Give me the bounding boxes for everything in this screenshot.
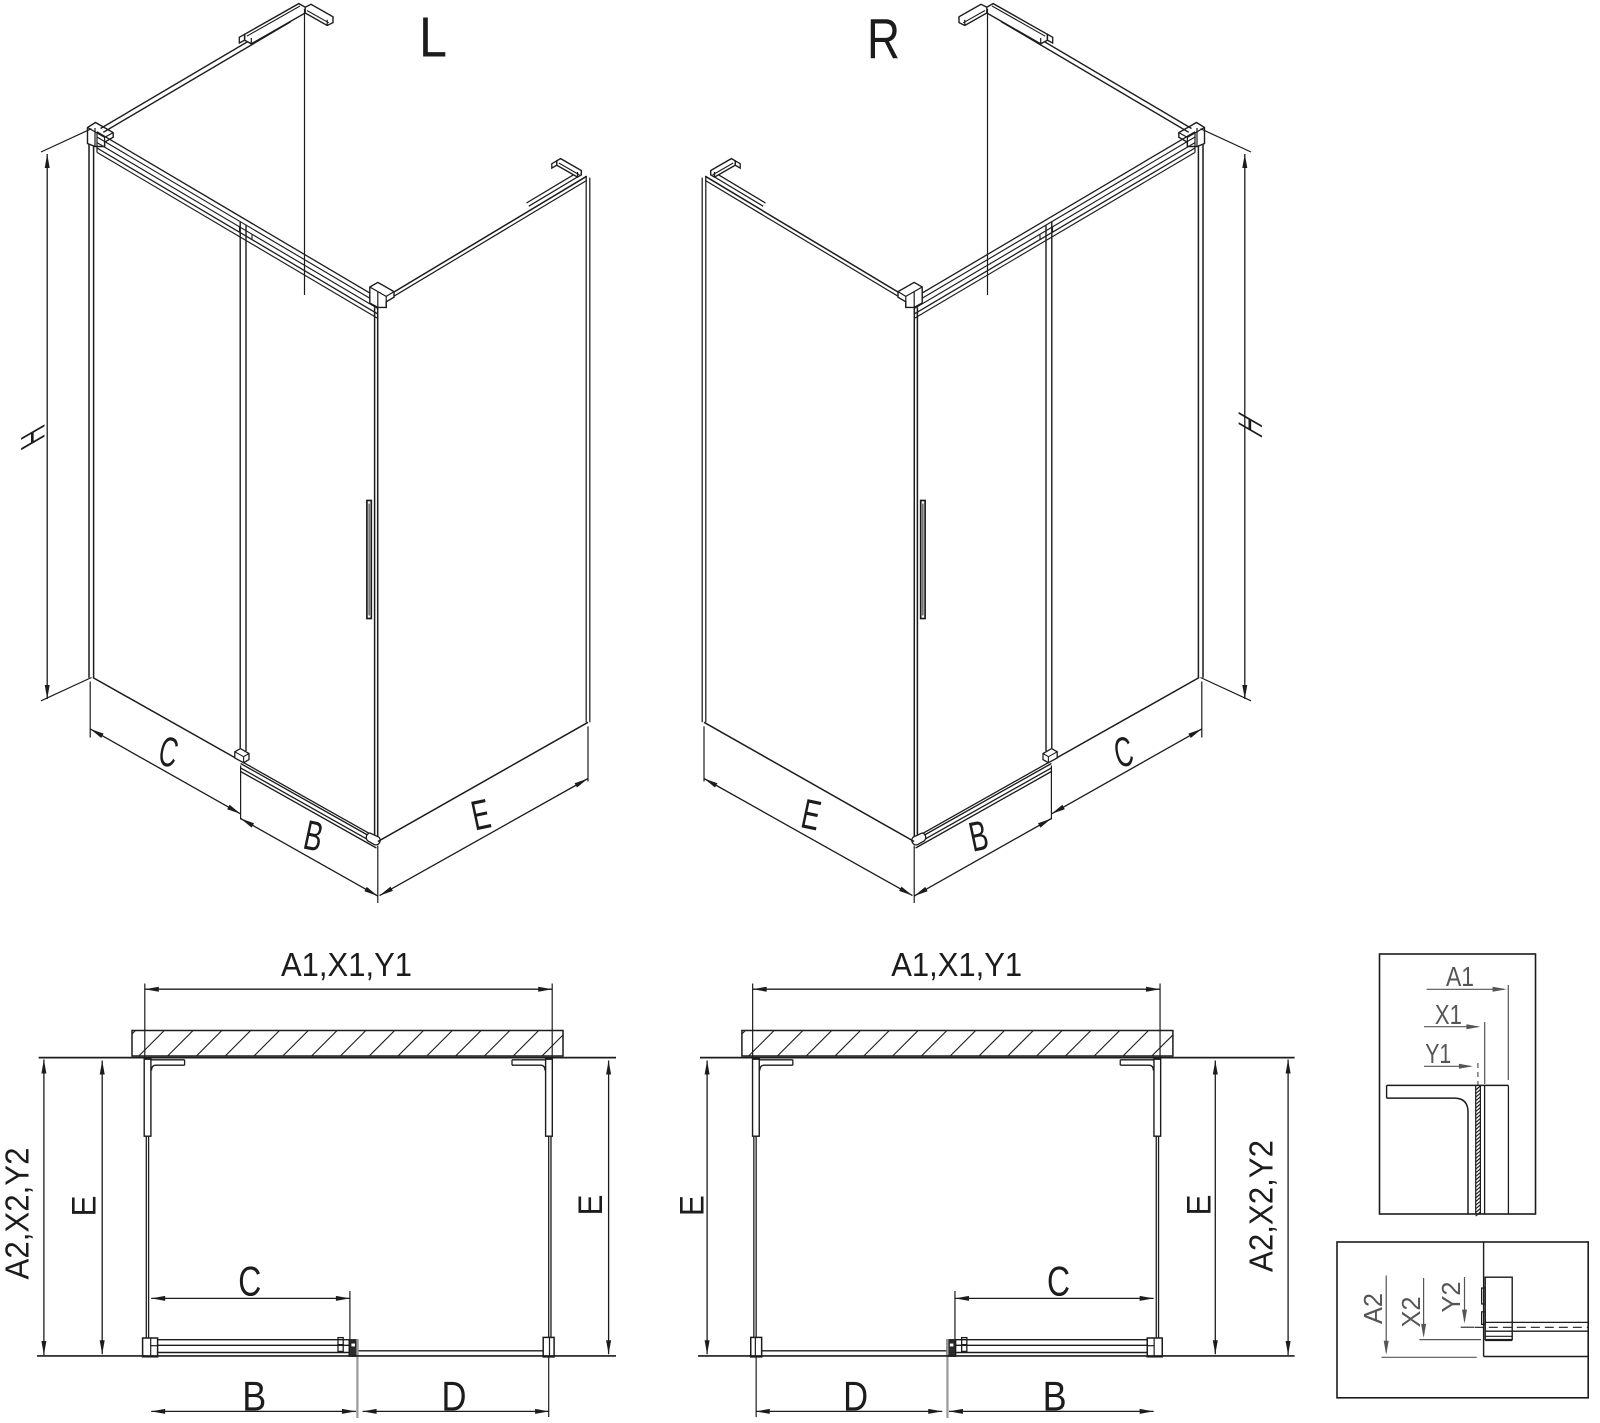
svg-text:X2: X2 <box>1396 1297 1426 1328</box>
svg-text:E: E <box>673 1195 711 1216</box>
svg-text:E: E <box>66 1196 104 1217</box>
svg-text:L: L <box>419 6 447 70</box>
svg-text:B: B <box>242 1373 266 1420</box>
svg-text:C: C <box>238 1258 261 1305</box>
svg-text:D: D <box>442 1373 467 1420</box>
svg-text:B: B <box>1043 1373 1067 1420</box>
svg-text:Y1: Y1 <box>1425 1038 1451 1069</box>
svg-text:A2,X2,Y2: A2,X2,Y2 <box>0 1148 36 1280</box>
svg-text:R: R <box>867 7 900 71</box>
svg-text:E: E <box>572 1195 610 1216</box>
svg-text:A2,X2,Y2: A2,X2,Y2 <box>1243 1140 1280 1272</box>
svg-text:A2: A2 <box>1358 1293 1388 1324</box>
svg-text:C: C <box>1047 1258 1070 1305</box>
svg-text:D: D <box>843 1373 868 1420</box>
svg-text:A1,X1,Y1: A1,X1,Y1 <box>891 946 1022 983</box>
svg-text:E: E <box>1181 1195 1219 1216</box>
svg-text:X1: X1 <box>1435 999 1462 1030</box>
svg-text:A1,X1,Y1: A1,X1,Y1 <box>281 946 412 983</box>
svg-text:Y2: Y2 <box>1436 1282 1466 1313</box>
svg-text:A1: A1 <box>1446 961 1474 992</box>
